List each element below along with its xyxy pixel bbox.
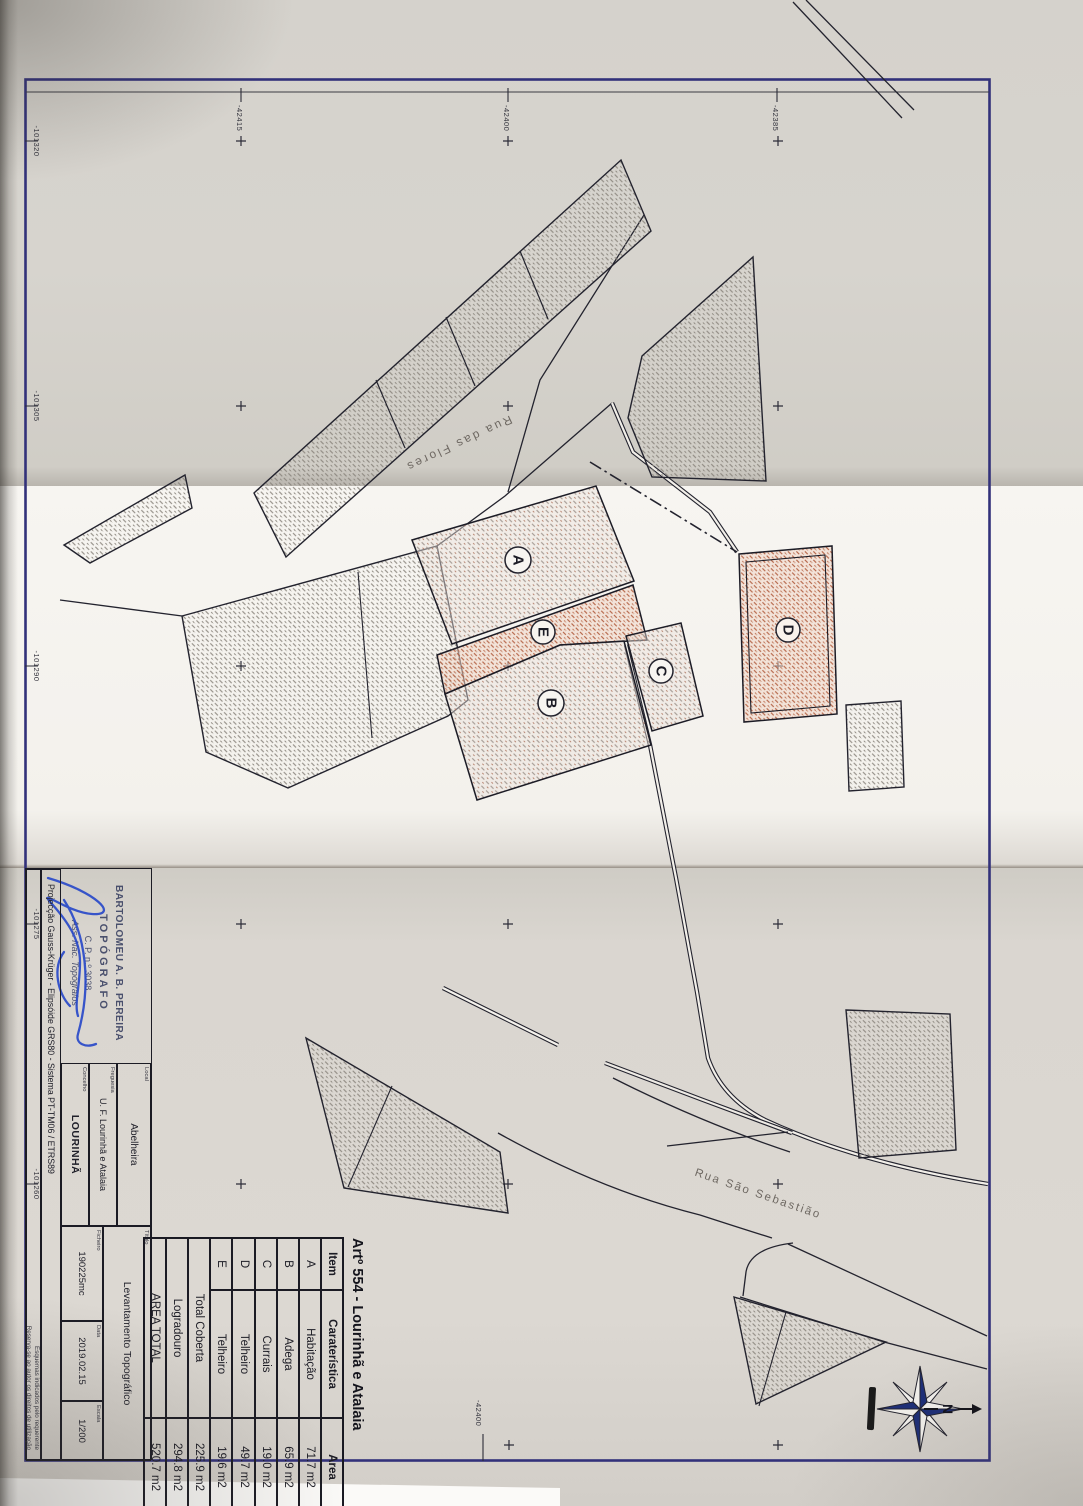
coord-top-2: -42400 xyxy=(502,105,511,131)
building-b-label: B xyxy=(543,698,560,709)
summary-logradouro-value: 294.8 m2 xyxy=(166,1418,188,1506)
row-b-carateristica: Adega xyxy=(277,1290,299,1418)
building-d-label: D xyxy=(780,625,797,636)
table-row: B Adega 65.9 m2 xyxy=(277,1238,299,1506)
field-ficheiro-value: 190225mc xyxy=(62,1227,102,1320)
field-local: Local Abelheira xyxy=(117,1063,151,1226)
compass-bar xyxy=(867,1387,876,1430)
summary-area-total-label: AREA TOTAL xyxy=(144,1238,166,1418)
coord-bottom-1: -42400 xyxy=(474,1400,483,1426)
street-rua-sao-sebastiao: Rua São Sebastião xyxy=(693,1167,823,1222)
row-d-item: D xyxy=(232,1238,254,1290)
row-e-area: 19.6 m2 xyxy=(210,1418,232,1506)
map-title: Artº 554 - Lourinhã e Atalaia xyxy=(349,1238,365,1456)
neighbor-quad-southeast xyxy=(846,1010,956,1158)
footnote-1: Esquemas indicados pelo requerente xyxy=(33,870,41,1450)
field-escala-value: 1/200 xyxy=(62,1402,102,1460)
field-concelho: Concelho LOURINHÃ xyxy=(61,1063,89,1226)
row-c-item: C xyxy=(255,1238,277,1290)
coord-left-1: -101320 xyxy=(32,125,41,156)
row-e-item: E xyxy=(210,1238,232,1290)
field-freguesia-value: U. F. Lourinhã e Atalaia xyxy=(90,1064,116,1225)
field-concelho-value: LOURINHÃ xyxy=(62,1064,88,1225)
plot-buildings xyxy=(412,486,837,800)
row-b-area: 65.9 m2 xyxy=(277,1418,299,1506)
field-freguesia: Freguesia U. F. Lourinhã e Atalaia xyxy=(89,1063,117,1226)
row-a-item: A xyxy=(299,1238,321,1290)
row-e-carateristica: Telheiro xyxy=(210,1290,232,1418)
coord-left-2: -101305 xyxy=(32,390,41,421)
field-data: Data 2019.02.15 xyxy=(61,1321,103,1401)
title-block: Local Abelheira Freguesia U. F. Lourinhã… xyxy=(25,868,152,1460)
row-d-carateristica: Telheiro xyxy=(232,1290,254,1418)
building-e-label: E xyxy=(535,627,552,637)
building-c-label: C xyxy=(653,666,670,677)
field-ficheiro: Ficheiro 190225mc xyxy=(61,1226,103,1321)
north-label: N xyxy=(940,1404,956,1414)
table-row: A Habitação 71.7 m2 xyxy=(299,1238,321,1506)
row-b-item: B xyxy=(277,1238,299,1290)
neighbor-square-east xyxy=(846,701,904,791)
map-title-wrap: Artº 554 - Lourinhã e Atalaia xyxy=(338,1238,365,1456)
table-row: D Telheiro 49.7 m2 xyxy=(232,1238,254,1506)
coord-left-3: -101290 xyxy=(32,650,41,681)
field-escala: Escala 1/200 xyxy=(61,1401,103,1461)
area-table-wrap: Item Caraterística Area A Habitação 71.7… xyxy=(145,1237,344,1506)
coord-top-3: -42385 xyxy=(771,105,780,131)
neighbor-band-west xyxy=(182,546,468,788)
row-c-area: 19.0 m2 xyxy=(255,1418,277,1506)
projection-note: Projecção Gauss-Krüger - Elipsóide GRS80… xyxy=(41,869,61,1461)
field-data-value: 2019.02.15 xyxy=(62,1322,102,1400)
row-c-carateristica: Currais xyxy=(255,1290,277,1418)
compass-rose: N xyxy=(867,1366,982,1452)
neighbor-quad-northeast xyxy=(628,257,766,481)
table-row: C Currais 19.0 m2 xyxy=(255,1238,277,1506)
row-a-carateristica: Habitação xyxy=(299,1290,321,1418)
summary-area-total-value: 520.7 m2 xyxy=(144,1418,166,1506)
row-d-area: 49.7 m2 xyxy=(232,1418,254,1506)
summary-total-coberta-value: 225.9 m2 xyxy=(188,1418,210,1506)
footnotes: Esquemas indicados pelo requerente Reser… xyxy=(26,869,41,1461)
summary-row: Total Coberta 225.9 m2 xyxy=(188,1238,210,1506)
row-a-area: 71.7 m2 xyxy=(299,1418,321,1506)
neighbor-quad-south xyxy=(306,1038,508,1213)
neighbor-triangle-southeast xyxy=(734,1297,886,1404)
summary-row: AREA TOTAL 520.7 m2 xyxy=(144,1238,166,1506)
building-a-label: A xyxy=(510,555,527,566)
neighbor-triangle-west xyxy=(64,475,192,563)
summary-logradouro-label: Logradouro xyxy=(166,1238,188,1418)
table-row: E Telheiro 19.6 m2 xyxy=(210,1238,232,1506)
footnote-2: Reserva-se ao autor os direitos de utili… xyxy=(25,870,33,1450)
scanned-survey-sheet: -42415 -42400 -42385 -101320 -101305 -10… xyxy=(0,0,1083,1506)
summary-row: Logradouro 294.8 m2 xyxy=(166,1238,188,1506)
coord-top-1: -42415 xyxy=(235,105,244,131)
summary-total-coberta-label: Total Coberta xyxy=(188,1238,210,1418)
field-local-value: Abelheira xyxy=(118,1064,150,1225)
